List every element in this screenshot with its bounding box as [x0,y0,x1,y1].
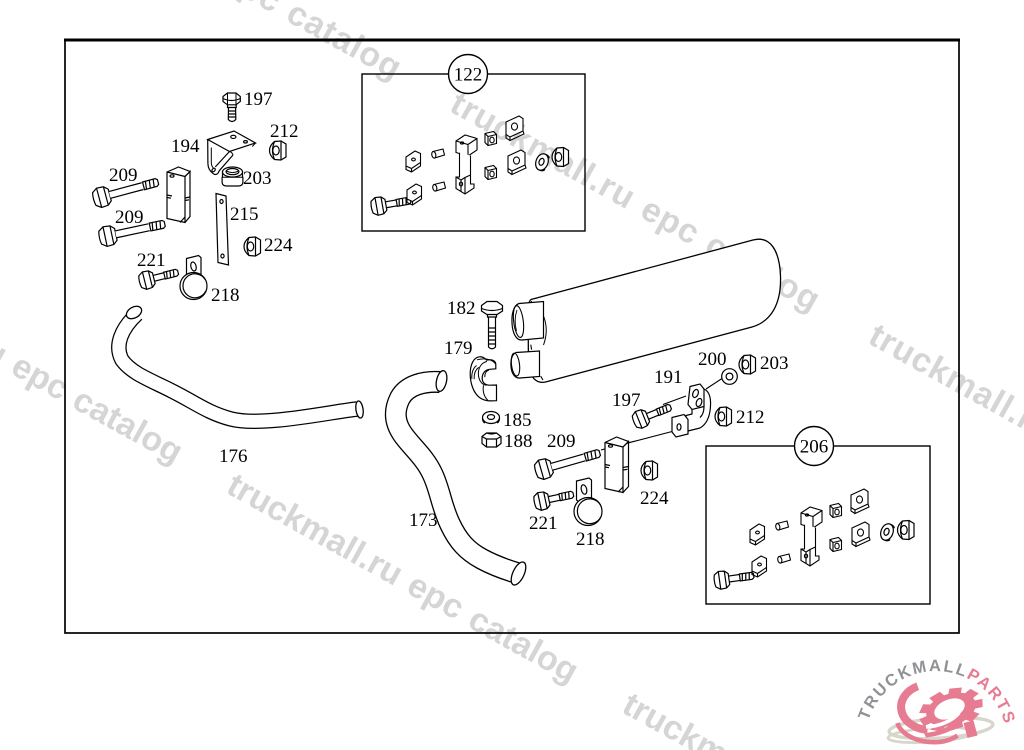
svg-text:197: 197 [612,390,641,411]
svg-text:194: 194 [171,136,200,157]
svg-text:221: 221 [529,513,558,534]
svg-text:179: 179 [444,338,473,359]
svg-text:122: 122 [454,65,483,86]
svg-text:203: 203 [243,168,272,189]
svg-text:224: 224 [264,235,293,256]
svg-text:200: 200 [698,349,727,370]
svg-text:203: 203 [760,353,789,374]
svg-text:218: 218 [576,529,605,550]
svg-text:212: 212 [736,407,765,428]
svg-text:197: 197 [244,89,273,110]
svg-text:221: 221 [137,250,166,271]
svg-text:209: 209 [109,165,138,186]
svg-text:218: 218 [211,285,240,306]
svg-text:185: 185 [503,410,532,431]
svg-text:191: 191 [654,367,683,388]
svg-text:209: 209 [547,431,576,452]
svg-text:188: 188 [504,431,533,452]
svg-text:173: 173 [409,510,438,531]
svg-text:209: 209 [115,207,144,228]
svg-text:212: 212 [270,121,299,142]
svg-text:176: 176 [219,446,248,467]
svg-text:182: 182 [447,298,476,319]
svg-text:206: 206 [800,437,829,458]
svg-text:215: 215 [230,204,259,225]
svg-text:224: 224 [640,488,669,509]
